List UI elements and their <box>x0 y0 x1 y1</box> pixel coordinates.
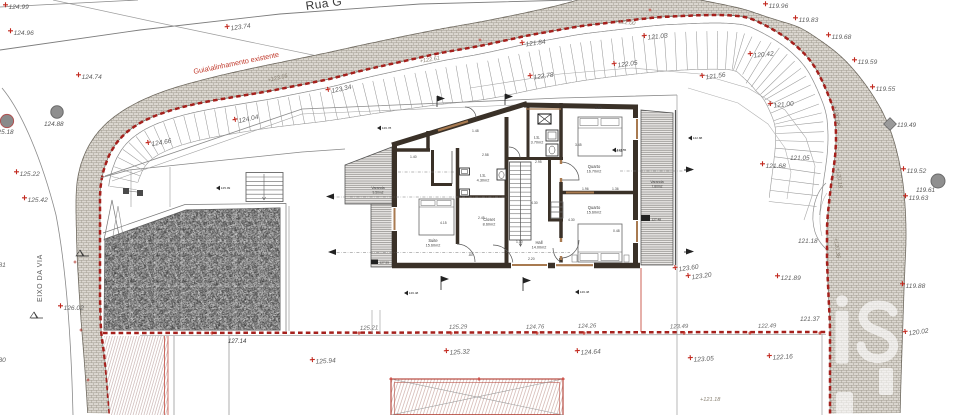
svg-text:1.36: 1.36 <box>612 187 619 191</box>
svg-text:Varanda: Varanda <box>371 186 384 190</box>
svg-text:127.55: 127.55 <box>617 148 627 152</box>
svg-text:Suite: Suite <box>428 238 438 243</box>
svg-text:+121.18: +121.18 <box>700 397 721 403</box>
svg-text:14.00m2: 14.00m2 <box>532 246 547 250</box>
svg-text:Hall: Hall <box>535 240 542 245</box>
svg-text:124.26: 124.26 <box>578 323 597 330</box>
svg-text:Quarto: Quarto <box>588 205 601 210</box>
svg-text:125.42: 125.42 <box>28 197 49 204</box>
svg-text:127.55: 127.55 <box>380 261 390 265</box>
svg-text:119.68: 119.68 <box>832 34 852 41</box>
svg-text:1.96: 1.96 <box>582 187 589 191</box>
svg-text:16.70m2: 16.70m2 <box>587 170 602 174</box>
svg-text:119.96: 119.96 <box>769 3 789 10</box>
svg-text:1.40: 1.40 <box>410 155 417 159</box>
svg-text:1.10: 1.10 <box>516 240 523 244</box>
svg-text:I.S.: I.S. <box>534 135 540 140</box>
svg-text:124.64: 124.64 <box>580 348 601 356</box>
svg-text:119.59: 119.59 <box>858 59 878 66</box>
svg-text:3.70m2: 3.70m2 <box>531 141 544 145</box>
svg-text:4.30m2: 4.30m2 <box>477 179 490 183</box>
svg-text:Varanda: Varanda <box>650 180 663 184</box>
svg-text:124.76: 124.76 <box>526 324 545 331</box>
svg-text:119.52: 119.52 <box>907 168 927 175</box>
svg-text:126.48: 126.48 <box>580 290 590 294</box>
svg-text:I.S.: I.S. <box>480 173 486 178</box>
svg-text:124.96: 124.96 <box>14 30 35 37</box>
svg-text:121.05: 121.05 <box>790 155 810 162</box>
svg-text:3.85: 3.85 <box>595 106 602 110</box>
svg-text:126.48: 126.48 <box>409 291 419 295</box>
svg-text:122.49: 122.49 <box>758 323 777 330</box>
svg-text:4.30: 4.30 <box>531 201 538 205</box>
svg-text:7.80m2: 7.80m2 <box>652 185 663 189</box>
svg-text:123.05: 123.05 <box>693 355 714 363</box>
svg-text:121.68: 121.68 <box>766 163 787 170</box>
svg-text:Closet: Closet <box>483 217 495 222</box>
svg-text:122.16: 122.16 <box>772 353 793 361</box>
svg-text:121.37: 121.37 <box>800 316 820 323</box>
svg-text:126.02: 126.02 <box>64 305 85 312</box>
svg-text:15.60m2: 15.60m2 <box>426 244 441 248</box>
svg-text:.80: .80 <box>468 253 473 257</box>
svg-text:EIXO DA VIA: EIXO DA VIA <box>37 254 44 302</box>
svg-text:119.83: 119.83 <box>799 17 819 24</box>
svg-text:119.49: 119.49 <box>897 122 917 129</box>
svg-text:127.48: 127.48 <box>652 218 662 222</box>
svg-text:0.48: 0.48 <box>613 229 620 233</box>
svg-text:2.58: 2.58 <box>482 153 489 157</box>
svg-text:125.22: 125.22 <box>20 171 41 178</box>
svg-text:3.45: 3.45 <box>575 143 582 147</box>
svg-text:2.20: 2.20 <box>528 257 535 261</box>
svg-text:4.30: 4.30 <box>568 218 575 222</box>
svg-text:1.48: 1.48 <box>472 129 479 133</box>
svg-text:125.99: 125.99 <box>221 186 231 190</box>
svg-text:9.50m2: 9.50m2 <box>373 191 384 195</box>
svg-text:126.78: 126.78 <box>382 126 392 130</box>
svg-text:119.88: 119.88 <box>906 283 926 290</box>
svg-text:125.94: 125.94 <box>315 357 336 365</box>
svg-text:126.30: 126.30 <box>0 357 6 364</box>
svg-text:125.18: 125.18 <box>0 129 14 136</box>
svg-text:123.49: 123.49 <box>670 324 689 331</box>
svg-text:2.95: 2.95 <box>535 160 542 164</box>
svg-text:125.29: 125.29 <box>449 324 468 331</box>
svg-text:121.89: 121.89 <box>781 275 802 282</box>
svg-text:125.32: 125.32 <box>449 348 470 356</box>
svg-text:15.60m2: 15.60m2 <box>587 211 602 215</box>
svg-text:124.88: 124.88 <box>44 121 64 128</box>
svg-text:4.15: 4.15 <box>440 221 447 225</box>
svg-text:119.55: 119.55 <box>876 86 896 93</box>
svg-text:2.45: 2.45 <box>478 216 485 220</box>
svg-text:124.74: 124.74 <box>82 74 103 81</box>
svg-text:8.60m2: 8.60m2 <box>483 223 496 227</box>
svg-text:124.99: 124.99 <box>9 4 30 11</box>
svg-text:122.88: 122.88 <box>693 136 703 140</box>
svg-text:127.14: 127.14 <box>228 339 247 345</box>
svg-text:125.81: 125.81 <box>0 262 6 269</box>
svg-text:119.61: 119.61 <box>916 187 936 194</box>
svg-text:119.63: 119.63 <box>909 195 929 202</box>
svg-text:Quarto: Quarto <box>588 164 601 169</box>
svg-text:125.21: 125.21 <box>360 325 379 332</box>
svg-text:121.18: 121.18 <box>798 238 818 245</box>
